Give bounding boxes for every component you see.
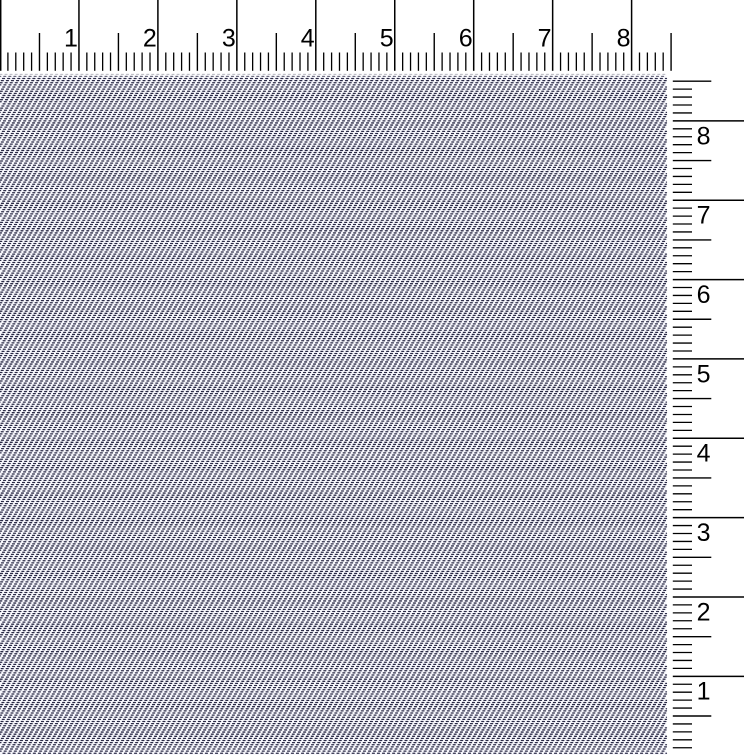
- svg-text:7: 7: [538, 25, 552, 53]
- svg-text:2: 2: [697, 598, 711, 626]
- svg-text:8: 8: [697, 122, 711, 150]
- svg-text:3: 3: [697, 519, 711, 547]
- svg-text:2: 2: [143, 25, 157, 53]
- svg-text:5: 5: [697, 360, 711, 388]
- svg-text:1: 1: [697, 678, 711, 706]
- svg-text:3: 3: [222, 25, 236, 53]
- svg-text:4: 4: [301, 25, 315, 53]
- svg-text:7: 7: [697, 202, 711, 230]
- svg-text:6: 6: [697, 281, 711, 309]
- svg-text:5: 5: [380, 25, 394, 53]
- svg-text:8: 8: [617, 25, 631, 53]
- svg-text:6: 6: [459, 25, 473, 53]
- svg-text:1: 1: [64, 25, 78, 53]
- svg-text:4: 4: [697, 440, 711, 468]
